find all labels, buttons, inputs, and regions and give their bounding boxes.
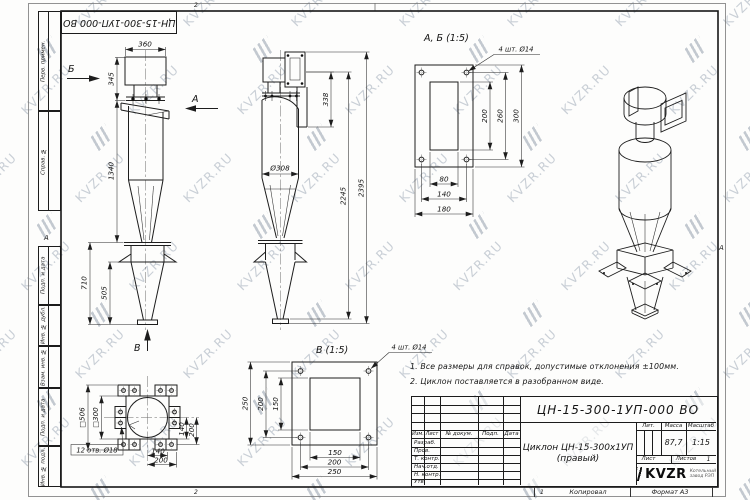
holes-callout: 4 шт. Ø14 [392, 344, 427, 352]
zone-mark-right: А [719, 244, 724, 252]
dim-label: 140 [177, 422, 186, 436]
col-izm: Изм. [412, 430, 424, 438]
dir-label-v: В [134, 343, 141, 354]
logo-subtitle-line2: завод РЭП [690, 474, 716, 479]
margin-label: Взам. инв. № [37, 347, 50, 387]
margin-box-podp-data-2: Подп. и дата [38, 388, 61, 446]
holes-callout: 12 отв. Ø18 [76, 447, 118, 455]
grid-line [412, 405, 520, 406]
footer-tick [712, 487, 713, 497]
top-stamp-number: ЦН-15-300-1УП-000 ВО [63, 17, 176, 28]
dim-label: 200 [256, 397, 265, 411]
dim-label: 200 [154, 456, 168, 465]
mass-label: Масса [661, 422, 686, 430]
dim-label: 140 [151, 447, 165, 456]
dim-label: 345 [107, 72, 116, 86]
sig-row-nkontr: Н. контр. [412, 471, 440, 479]
part-name: Циклон ЦН-15-300х1УП (правый) [520, 422, 636, 485]
dim-label: □506 [78, 407, 87, 428]
dim-label: 710 [80, 276, 89, 290]
sheet-label: Лист [636, 455, 661, 463]
fold-mark-top: 2 [194, 2, 198, 9]
dim-label: 2395 [357, 178, 366, 197]
detail-title: А, Б (1:5) [423, 33, 469, 44]
margin-label: Подп. и дата [37, 247, 50, 304]
dim-label: 140 [437, 190, 451, 199]
margin-label: Инв. № подл. [37, 447, 50, 486]
grid-line [644, 430, 645, 455]
dim-label: 250 [241, 396, 250, 410]
margin-box-perv-primen: Перв. примен. [38, 11, 61, 111]
margin-box-sprav-no: Справ. № [38, 111, 61, 211]
dim-label: 150 [271, 397, 280, 411]
holes-callout: 4 шт. Ø14 [499, 46, 534, 54]
note-line: 2. Циклон поставляется в разобранном вид… [410, 374, 710, 389]
margin-label: Подп. и дата [37, 389, 50, 445]
dim-label: 300 [512, 109, 521, 123]
view-bottom: □506 □300 140 200 140 200 12 отв. Ø18 [71, 376, 200, 468]
note-line: 1. Все размеры для справок, допустимые о… [410, 359, 710, 374]
view-side: Ø308 338 2245 [254, 50, 370, 330]
scale-value: 1:15 [686, 430, 716, 455]
dim-label: 360 [138, 40, 152, 49]
sig-row-tkontr: Т. контр. [412, 455, 440, 463]
doc-number: ЦН-15-300-1УП-000 ВО [520, 397, 716, 422]
format-label: Формат А3 [638, 488, 702, 496]
logo-stripes-icon [636, 467, 642, 481]
copy-number: 1 [537, 488, 547, 496]
sheets-label: Листов [671, 455, 701, 463]
sig-row-nachotd: Нач.отд. [412, 463, 440, 471]
dim-label: 80 [439, 175, 449, 184]
col-podp: Подп. [478, 430, 503, 438]
mass-value: 87,7 [661, 430, 686, 455]
col-list: Лист [424, 430, 440, 438]
dim-label: 200 [480, 109, 489, 123]
dim-label: 505 [100, 286, 109, 300]
dim-label: 150 [328, 448, 342, 457]
margin-label: Инв. № дубл. [37, 306, 50, 345]
margin-label: Перв. примен. [37, 12, 50, 110]
company-logo: KVZR Котельный завод РЭП [636, 463, 716, 485]
logo-text: KVZR [645, 467, 687, 482]
detail-ab: А, Б (1:5) 4 шт. Ø14 200 260 300 [415, 33, 540, 217]
fold-mark-bottom: 2 [194, 489, 198, 496]
col-data: Дата [503, 430, 520, 438]
view-front: Б А В 360 345 1340 710 50 [67, 40, 218, 355]
margin-box-vzam-inv: Взам. инв. № [38, 346, 61, 388]
margin-box-podp-data-1: Подп. и дата [38, 246, 61, 305]
sig-row-razrab: Разраб. [412, 438, 440, 447]
dim-label: □300 [91, 407, 100, 428]
dim-label: Ø308 [269, 164, 290, 173]
sheets-value: 1 [701, 455, 716, 463]
footer-tick [630, 487, 631, 497]
zone-mark-left: А [44, 234, 49, 242]
sig-row-prov: Пров. [412, 447, 440, 455]
title-block: ЦН-15-300-1УП-000 ВО Изм. Лист № докум. … [411, 396, 718, 487]
dir-label-a: А [191, 94, 199, 105]
dim-label: 1340 [107, 161, 116, 180]
view-isometric [599, 87, 691, 319]
footer-tick [534, 487, 535, 497]
margin-box-inv-dubl: Инв. № дубл. [38, 305, 61, 346]
detail-v: В (1:5) 4 шт. Ø14 150 200 250 [241, 344, 433, 480]
notes: 1. Все размеры для справок, допустимые о… [410, 359, 710, 389]
dir-label-b: Б [68, 64, 75, 75]
top-stamp: ЦН-15-300-1УП-000 ВО [61, 11, 177, 34]
bolt-holes [296, 366, 374, 443]
lit-label: Лит. [636, 422, 661, 430]
dim-label: 250 [328, 467, 342, 476]
margin-label: Справ. № [37, 112, 50, 210]
copied-label: Копировал [558, 488, 618, 496]
part-name-line2: (правый) [557, 454, 599, 465]
dim-label: 260 [496, 109, 505, 123]
dim-label: 200 [328, 458, 342, 467]
grid-line [412, 413, 520, 414]
grid-line [652, 430, 653, 455]
detail-title: В (1:5) [316, 345, 348, 356]
col-dokum: № докум. [440, 430, 478, 438]
scale-label: Масштаб [686, 422, 716, 430]
dim-label: 200 [187, 423, 196, 437]
sig-row-utv: Утв. [412, 479, 440, 485]
dim-label: 2245 [339, 186, 348, 205]
dim-label: 338 [321, 92, 330, 106]
drawing-sheet: KVZR.RUKVZR.RUKVZR.RUKVZR.RUKVZR.RUKVZR.… [0, 0, 750, 500]
part-name-line1: Циклон ЦН-15-300х1УП [523, 443, 633, 454]
dim-label: 180 [437, 205, 451, 214]
margin-box-inv-podl: Инв. № подл. [38, 446, 61, 487]
